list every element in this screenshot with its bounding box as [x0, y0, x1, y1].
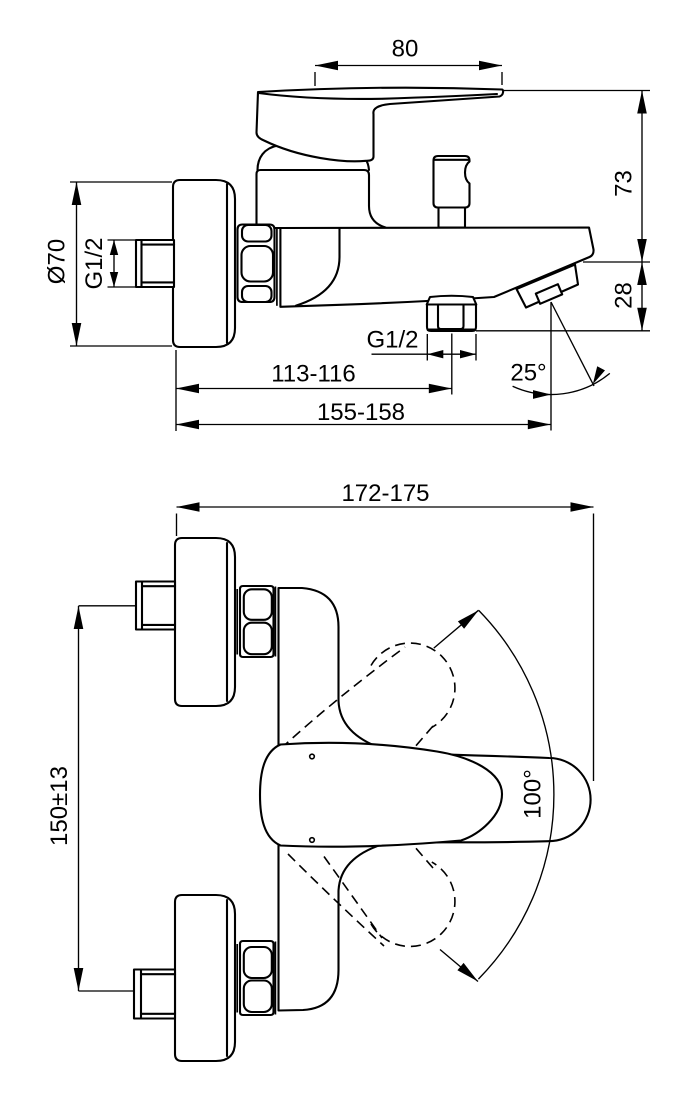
svg-text:28: 28 — [611, 282, 638, 309]
svg-text:150±13: 150±13 — [46, 766, 73, 846]
svg-text:G1/2: G1/2 — [366, 327, 418, 354]
svg-text:100°: 100° — [520, 769, 547, 819]
svg-text:155-158: 155-158 — [317, 399, 405, 426]
svg-text:G1/2: G1/2 — [81, 237, 108, 289]
svg-text:113-116: 113-116 — [271, 361, 356, 388]
svg-text:Ø70: Ø70 — [44, 239, 71, 284]
svg-text:25°: 25° — [510, 360, 546, 387]
svg-text:73: 73 — [611, 170, 638, 197]
svg-text:172-175: 172-175 — [341, 480, 429, 507]
svg-text:80: 80 — [392, 36, 419, 63]
